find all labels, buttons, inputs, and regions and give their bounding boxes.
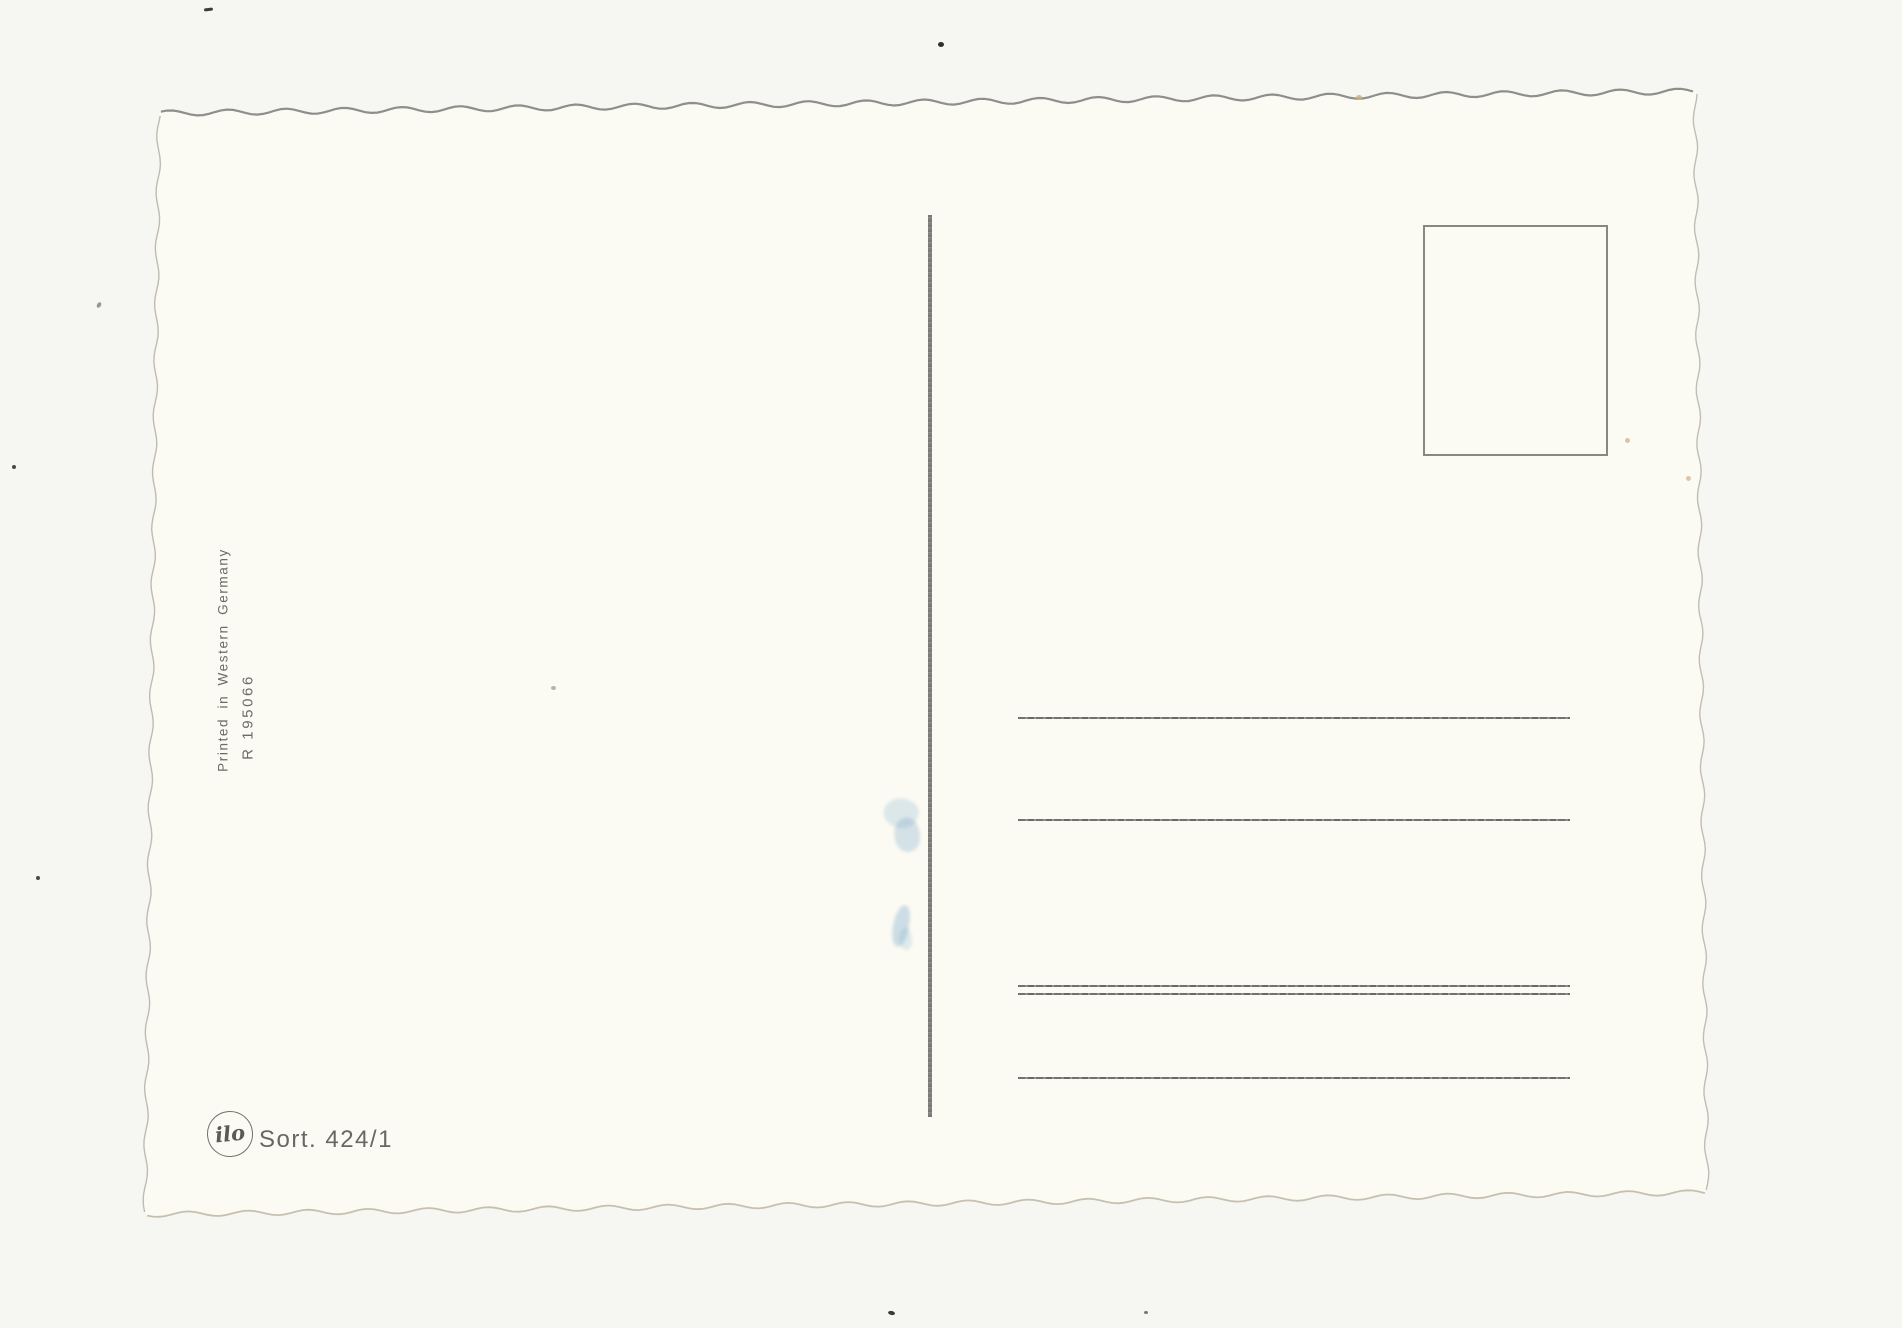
- stamp-box: [1423, 225, 1608, 456]
- dust-speck: [96, 301, 102, 308]
- address-line: [1018, 985, 1570, 987]
- publisher-logo: ilo: [205, 1109, 256, 1160]
- printed-in-note: Printed in Western Germany: [216, 548, 231, 772]
- dust-speck: [938, 42, 944, 47]
- dust-speck: [204, 7, 213, 11]
- address-line: [1018, 1077, 1570, 1079]
- publisher-logo-monogram: ilo: [214, 1121, 246, 1147]
- address-line: [1018, 993, 1570, 995]
- dust-speck: [888, 1310, 896, 1315]
- dust-speck: [36, 876, 40, 880]
- address-line: [1018, 717, 1570, 719]
- scanned-postcard-scene: Printed in Western Germany R 195066 ilo …: [0, 0, 1902, 1328]
- print-reference-number: R 195066: [240, 674, 257, 760]
- dust-speck: [1356, 95, 1362, 100]
- dust-speck: [12, 465, 16, 469]
- center-divider-line: [928, 215, 932, 1117]
- dust-speck: [1686, 476, 1691, 481]
- address-line: [1018, 819, 1570, 821]
- dust-speck: [1625, 438, 1630, 443]
- dust-speck: [1144, 1311, 1148, 1314]
- ink-smudge: [897, 927, 914, 951]
- dust-speck: [551, 686, 556, 690]
- sort-number-label: Sort. 424/1: [259, 1126, 393, 1154]
